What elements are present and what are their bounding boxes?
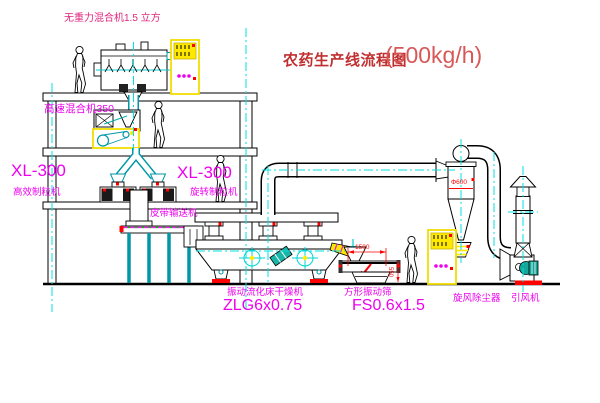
dim-screen-height: 550 (387, 267, 393, 277)
flow-diagram-canvas: 无重力混合机1.5 立方 农药生产线流程图 (500kg/h) 高速混合机350… (0, 0, 600, 403)
page-title-capacity: (500kg/h) (385, 44, 482, 67)
granulator-discharge-column (126, 190, 152, 226)
label-gravity-mixer: 无重力混合机1.5 立方 (64, 14, 161, 24)
label-high-speed-mixer: 高速混合机350 (44, 104, 114, 115)
label-dryer-model: ZLG6x0.75 (223, 298, 302, 314)
dim-cyclone-dia: Φ600 (451, 180, 467, 187)
high-speed-mixer (93, 110, 140, 148)
exhaust-duct (268, 158, 452, 215)
worker-figure-floor2 (152, 101, 165, 147)
worker-figure-ground (405, 236, 418, 282)
control-cabinet-ground (428, 230, 456, 284)
label-granulator-left-model: XL-300 (11, 162, 66, 179)
label-granulator-right-model: XL-300 (177, 164, 232, 181)
dim-screen-length: 1500 (355, 245, 369, 252)
label-cyclone: 旋风除尘器 (453, 294, 501, 304)
label-belt-conveyor: 皮带输送机 (150, 209, 198, 219)
control-cabinet-roof (171, 40, 199, 94)
gravity-free-mixer (94, 42, 176, 99)
worker-figure-roof (73, 46, 86, 92)
label-granulator-left-name: 高效制粒机 (13, 188, 61, 198)
label-fan: 引风机 (511, 294, 540, 304)
label-granulator-right-name: 旋转制粒机 (190, 188, 238, 198)
label-screen-model: FS0.6x1.5 (352, 298, 425, 314)
